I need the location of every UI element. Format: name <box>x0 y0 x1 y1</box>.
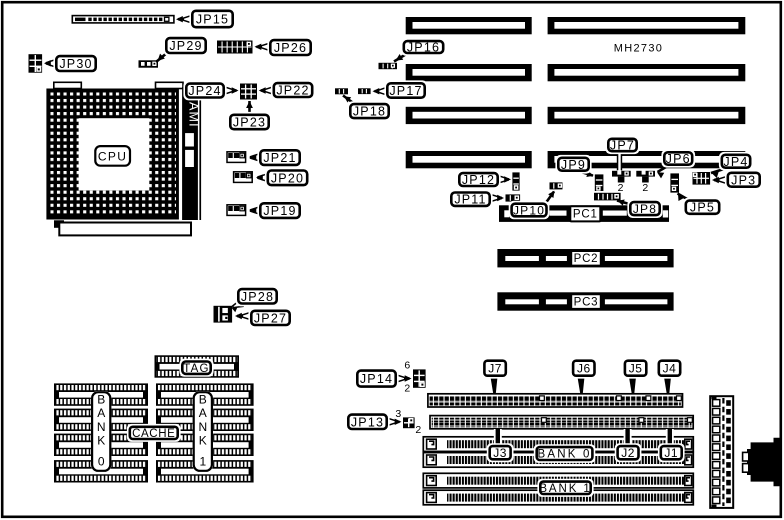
svg-text:K: K <box>97 433 105 447</box>
svg-text:JP3: JP3 <box>731 173 756 187</box>
svg-text:6: 6 <box>404 360 410 372</box>
svg-text:MH2730: MH2730 <box>614 43 663 55</box>
svg-text:JP28: JP28 <box>241 290 274 304</box>
svg-text:PC3: PC3 <box>574 296 599 308</box>
svg-text:JP29: JP29 <box>169 39 202 53</box>
svg-text:J3: J3 <box>493 446 507 460</box>
svg-text:2: 2 <box>415 424 421 436</box>
svg-text:J5: J5 <box>629 362 643 376</box>
svg-text:B: B <box>97 393 105 407</box>
svg-text:TAG: TAG <box>183 363 209 375</box>
svg-text:A: A <box>97 406 105 420</box>
svg-text:JP27: JP27 <box>254 311 287 325</box>
svg-text:JP12: JP12 <box>462 173 495 187</box>
svg-text:JP6: JP6 <box>666 152 691 166</box>
svg-text:CACHE: CACHE <box>132 428 175 440</box>
svg-text:3: 3 <box>395 408 401 420</box>
svg-text:JP19: JP19 <box>263 204 296 218</box>
svg-text:JP10: JP10 <box>513 203 545 217</box>
svg-text:JP8: JP8 <box>633 202 657 216</box>
svg-text:JP4: JP4 <box>723 155 748 169</box>
svg-text:J4: J4 <box>663 362 677 376</box>
svg-text:J1: J1 <box>664 446 678 460</box>
svg-text:JP22: JP22 <box>276 84 309 98</box>
svg-text:JP15: JP15 <box>196 13 229 27</box>
svg-text:0: 0 <box>98 455 105 469</box>
svg-text:JP7: JP7 <box>610 139 635 153</box>
svg-text:PC2: PC2 <box>574 253 599 265</box>
svg-text:JP13: JP13 <box>351 415 384 429</box>
svg-text:JP17: JP17 <box>389 84 422 98</box>
svg-text:CPU: CPU <box>98 149 128 163</box>
svg-text:JP20: JP20 <box>271 171 304 185</box>
svg-text:N: N <box>198 420 207 434</box>
svg-text:1: 1 <box>199 455 206 469</box>
svg-text:N: N <box>97 420 106 434</box>
svg-text:2: 2 <box>618 182 624 194</box>
svg-text:JP9: JP9 <box>561 158 586 172</box>
svg-text:JP21: JP21 <box>263 151 296 165</box>
svg-text:JP16: JP16 <box>407 41 440 55</box>
svg-text:BANK 1: BANK 1 <box>539 483 591 495</box>
svg-text:JP26: JP26 <box>274 41 307 55</box>
svg-text:JP18: JP18 <box>353 105 386 119</box>
svg-text:A: A <box>199 406 207 420</box>
svg-text:K: K <box>199 433 207 447</box>
svg-text:JP23: JP23 <box>233 116 266 130</box>
svg-text:AMI: AMI <box>187 102 201 128</box>
svg-text:J2: J2 <box>621 446 635 460</box>
svg-text:2: 2 <box>642 182 648 194</box>
svg-text:JP11: JP11 <box>454 193 486 207</box>
svg-text:BANK 0: BANK 0 <box>537 449 591 461</box>
svg-text:2: 2 <box>404 383 410 395</box>
svg-text:PC1: PC1 <box>573 209 598 221</box>
svg-text:J6: J6 <box>577 362 591 376</box>
svg-text:JP30: JP30 <box>59 57 92 71</box>
svg-text:JP14: JP14 <box>360 372 393 386</box>
svg-text:B: B <box>199 393 207 407</box>
svg-text:JP5: JP5 <box>690 201 715 215</box>
svg-text:J7: J7 <box>488 362 502 376</box>
svg-text:JP24: JP24 <box>188 84 221 98</box>
